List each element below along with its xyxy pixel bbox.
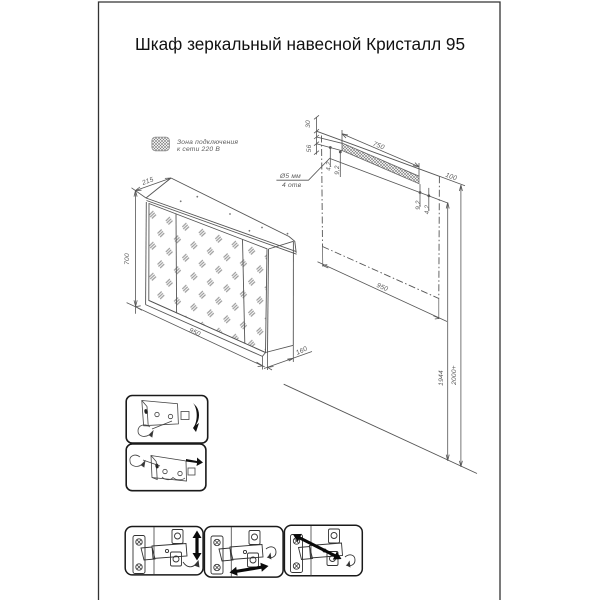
svg-text:Шкаф зеркальный навесной Крист: Шкаф зеркальный навесной Кристалл 95 — [135, 34, 465, 54]
svg-text:4 отв: 4 отв — [282, 182, 302, 189]
svg-text:4,2: 4,2 — [326, 161, 333, 171]
svg-text:4,2: 4,2 — [424, 204, 431, 214]
svg-text:215: 215 — [140, 176, 154, 187]
svg-text:Зона подключения: Зона подключения — [177, 138, 238, 146]
svg-text:700: 700 — [124, 253, 131, 265]
svg-text:9,2: 9,2 — [415, 200, 422, 210]
svg-text:30: 30 — [305, 120, 312, 128]
svg-text:100: 100 — [444, 172, 458, 183]
svg-text:Ø5 мм: Ø5 мм — [279, 173, 301, 180]
svg-text:1944: 1944 — [438, 370, 445, 386]
svg-text:9,2: 9,2 — [334, 165, 341, 175]
svg-text:к сети 220 В: к сети 220 В — [177, 146, 220, 153]
svg-text:56: 56 — [306, 145, 313, 153]
svg-text:2000+: 2000+ — [451, 365, 458, 386]
